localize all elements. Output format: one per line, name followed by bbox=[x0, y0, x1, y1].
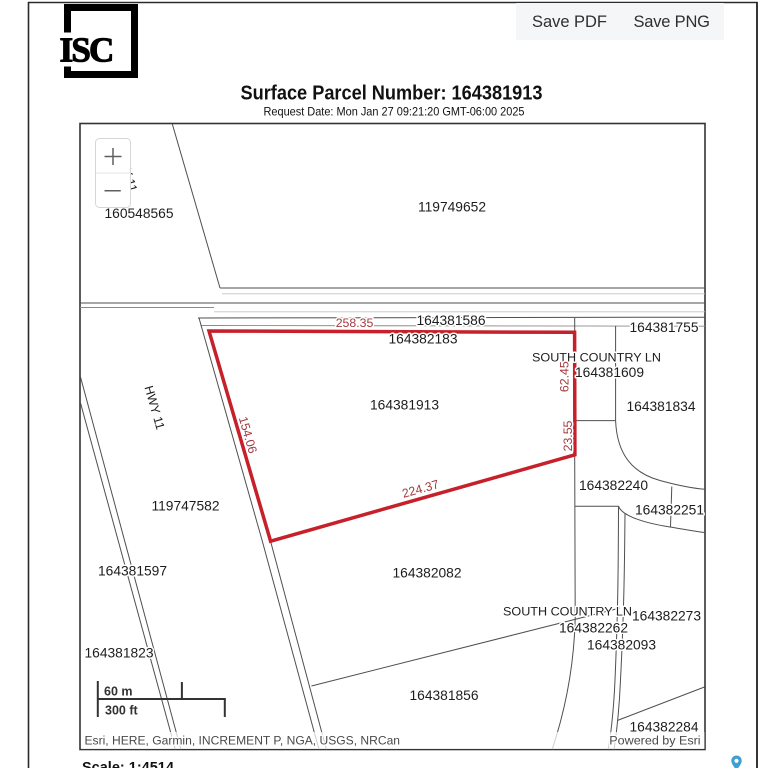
svg-text:119749652: 119749652 bbox=[418, 200, 486, 215]
svg-text:Save PNG: Save PNG bbox=[634, 13, 711, 31]
svg-text:164381609: 164381609 bbox=[575, 365, 644, 380]
svg-text:ISC: ISC bbox=[60, 31, 113, 70]
svg-text:164382262: 164382262 bbox=[559, 621, 628, 636]
svg-text:SOUTH COUNTRY LN: SOUTH COUNTRY LN bbox=[532, 351, 661, 365]
svg-text:164382273: 164382273 bbox=[632, 609, 701, 624]
svg-text:23.55: 23.55 bbox=[561, 420, 575, 451]
svg-text:60 m: 60 m bbox=[104, 685, 133, 699]
svg-text:164381755: 164381755 bbox=[629, 320, 698, 335]
svg-text:164382093: 164382093 bbox=[587, 638, 656, 653]
svg-text:119747582: 119747582 bbox=[151, 499, 219, 514]
svg-text:164382082: 164382082 bbox=[392, 566, 461, 581]
svg-text:300 ft: 300 ft bbox=[105, 704, 138, 718]
svg-text:164381586: 164381586 bbox=[416, 313, 485, 328]
svg-text:Save PDF: Save PDF bbox=[532, 13, 607, 31]
svg-text:164381834: 164381834 bbox=[626, 399, 695, 414]
svg-text:164382240: 164382240 bbox=[579, 478, 648, 493]
svg-text:Request Date: Mon Jan 27 09:21: Request Date: Mon Jan 27 09:21:20 GMT-06… bbox=[264, 105, 525, 119]
svg-text:164382251: 164382251 bbox=[635, 503, 704, 518]
svg-text:164381823: 164381823 bbox=[84, 646, 153, 661]
svg-text:160548565: 160548565 bbox=[104, 206, 173, 221]
svg-text:62.45: 62.45 bbox=[557, 361, 571, 392]
svg-text:164381856: 164381856 bbox=[409, 688, 478, 703]
svg-text:258.35: 258.35 bbox=[336, 316, 374, 330]
svg-text:SOUTH COUNTRY LN: SOUTH COUNTRY LN bbox=[503, 605, 632, 619]
svg-text:Surface Parcel Number: 1643819: Surface Parcel Number: 164381913 bbox=[241, 82, 543, 105]
svg-text:164382183: 164382183 bbox=[388, 332, 457, 347]
svg-text:Scale: 1:4514: Scale: 1:4514 bbox=[82, 760, 174, 768]
svg-text:164381913: 164381913 bbox=[370, 397, 439, 412]
svg-text:Esri, HERE, Garmin, INCREMENT: Esri, HERE, Garmin, INCREMENT P, NGA, US… bbox=[85, 734, 401, 748]
svg-text:Powered by Esri: Powered by Esri bbox=[609, 734, 700, 748]
svg-text:164381597: 164381597 bbox=[98, 564, 167, 579]
